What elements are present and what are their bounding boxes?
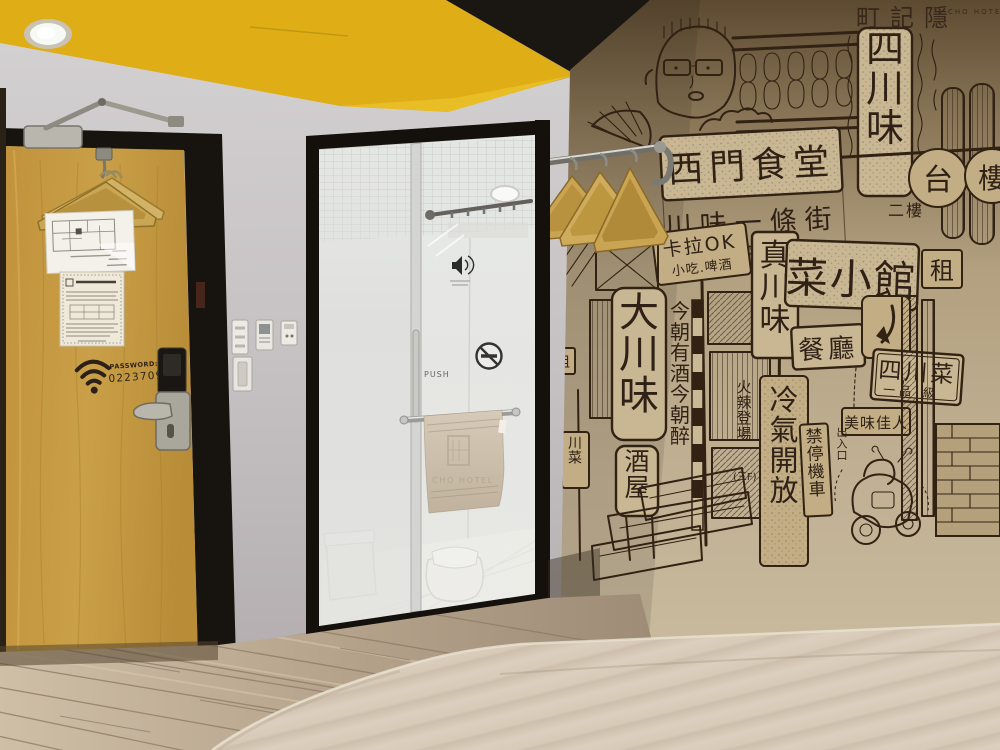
pod-frame-right — [535, 120, 550, 614]
svg-text:台: 台 — [923, 163, 953, 198]
push-label: PUSH — [424, 370, 450, 379]
hotel-room-photo: 町記隱 CHO HOTEL 四川味 台 — [0, 0, 1000, 750]
pod-frame-left — [306, 136, 319, 646]
hand-towel[interactable]: CHO HOTEL — [424, 410, 507, 513]
checker-pole — [692, 300, 703, 530]
sign-spicy-floor: (三F) — [733, 472, 757, 483]
sign-tavern: 酒屋 — [624, 447, 649, 502]
sign-exit: 出入口 — [837, 425, 848, 462]
frame-strike-plate — [196, 282, 205, 308]
svg-text:樓: 樓 — [978, 162, 1000, 195]
socket-panel[interactable] — [281, 321, 297, 345]
sign-air-conditioning: 冷氣開放 — [760, 376, 808, 566]
svg-text:餐廳: 餐廳 — [798, 333, 860, 366]
svg-text:冷氣開放: 冷氣開放 — [769, 383, 798, 507]
mural-cho-hotel-tag: CHO HOTEL — [948, 8, 1000, 16]
glass-door-handle[interactable] — [413, 330, 419, 422]
glass-panel-left — [318, 144, 411, 627]
evacuation-map-paper — [45, 210, 135, 273]
svg-text:川菜: 川菜 — [568, 436, 582, 467]
door-edge-shadow — [0, 88, 6, 658]
sign-no-scooter: 禁停機車 — [800, 423, 833, 516]
light-switch-panel[interactable] — [232, 320, 248, 354]
svg-text:西門食堂: 西門食堂 — [666, 142, 836, 192]
lower-switch-panel[interactable] — [233, 357, 252, 391]
svg-text:大川味: 大川味 — [619, 290, 659, 419]
entrance-door: PASSWORD: 0223709830 — [0, 88, 236, 662]
recessed-light — [24, 19, 72, 49]
thermostat-panel[interactable] — [256, 320, 273, 350]
sign-rent-top: 租 — [922, 250, 962, 288]
sign-second-floor: 二樓 — [888, 201, 924, 220]
sign-dining-hall: 餐廳 — [791, 324, 865, 370]
sign-spicy-show: 火辣登場 — [736, 378, 751, 443]
verse-drink-today: 今朝有酒今朝醉 — [670, 299, 690, 448]
sign-karaoke: 卡拉OK 小吃.啤酒 — [652, 222, 752, 285]
notice-paper — [60, 272, 124, 346]
towel-brand-text: CHO HOTEL — [432, 476, 494, 485]
svg-text:美味佳人: 美味佳人 — [844, 414, 908, 432]
svg-text:租: 租 — [930, 257, 954, 285]
no-smoking-sticker — [477, 344, 502, 369]
svg-text:四川味: 四川味 — [866, 27, 904, 150]
